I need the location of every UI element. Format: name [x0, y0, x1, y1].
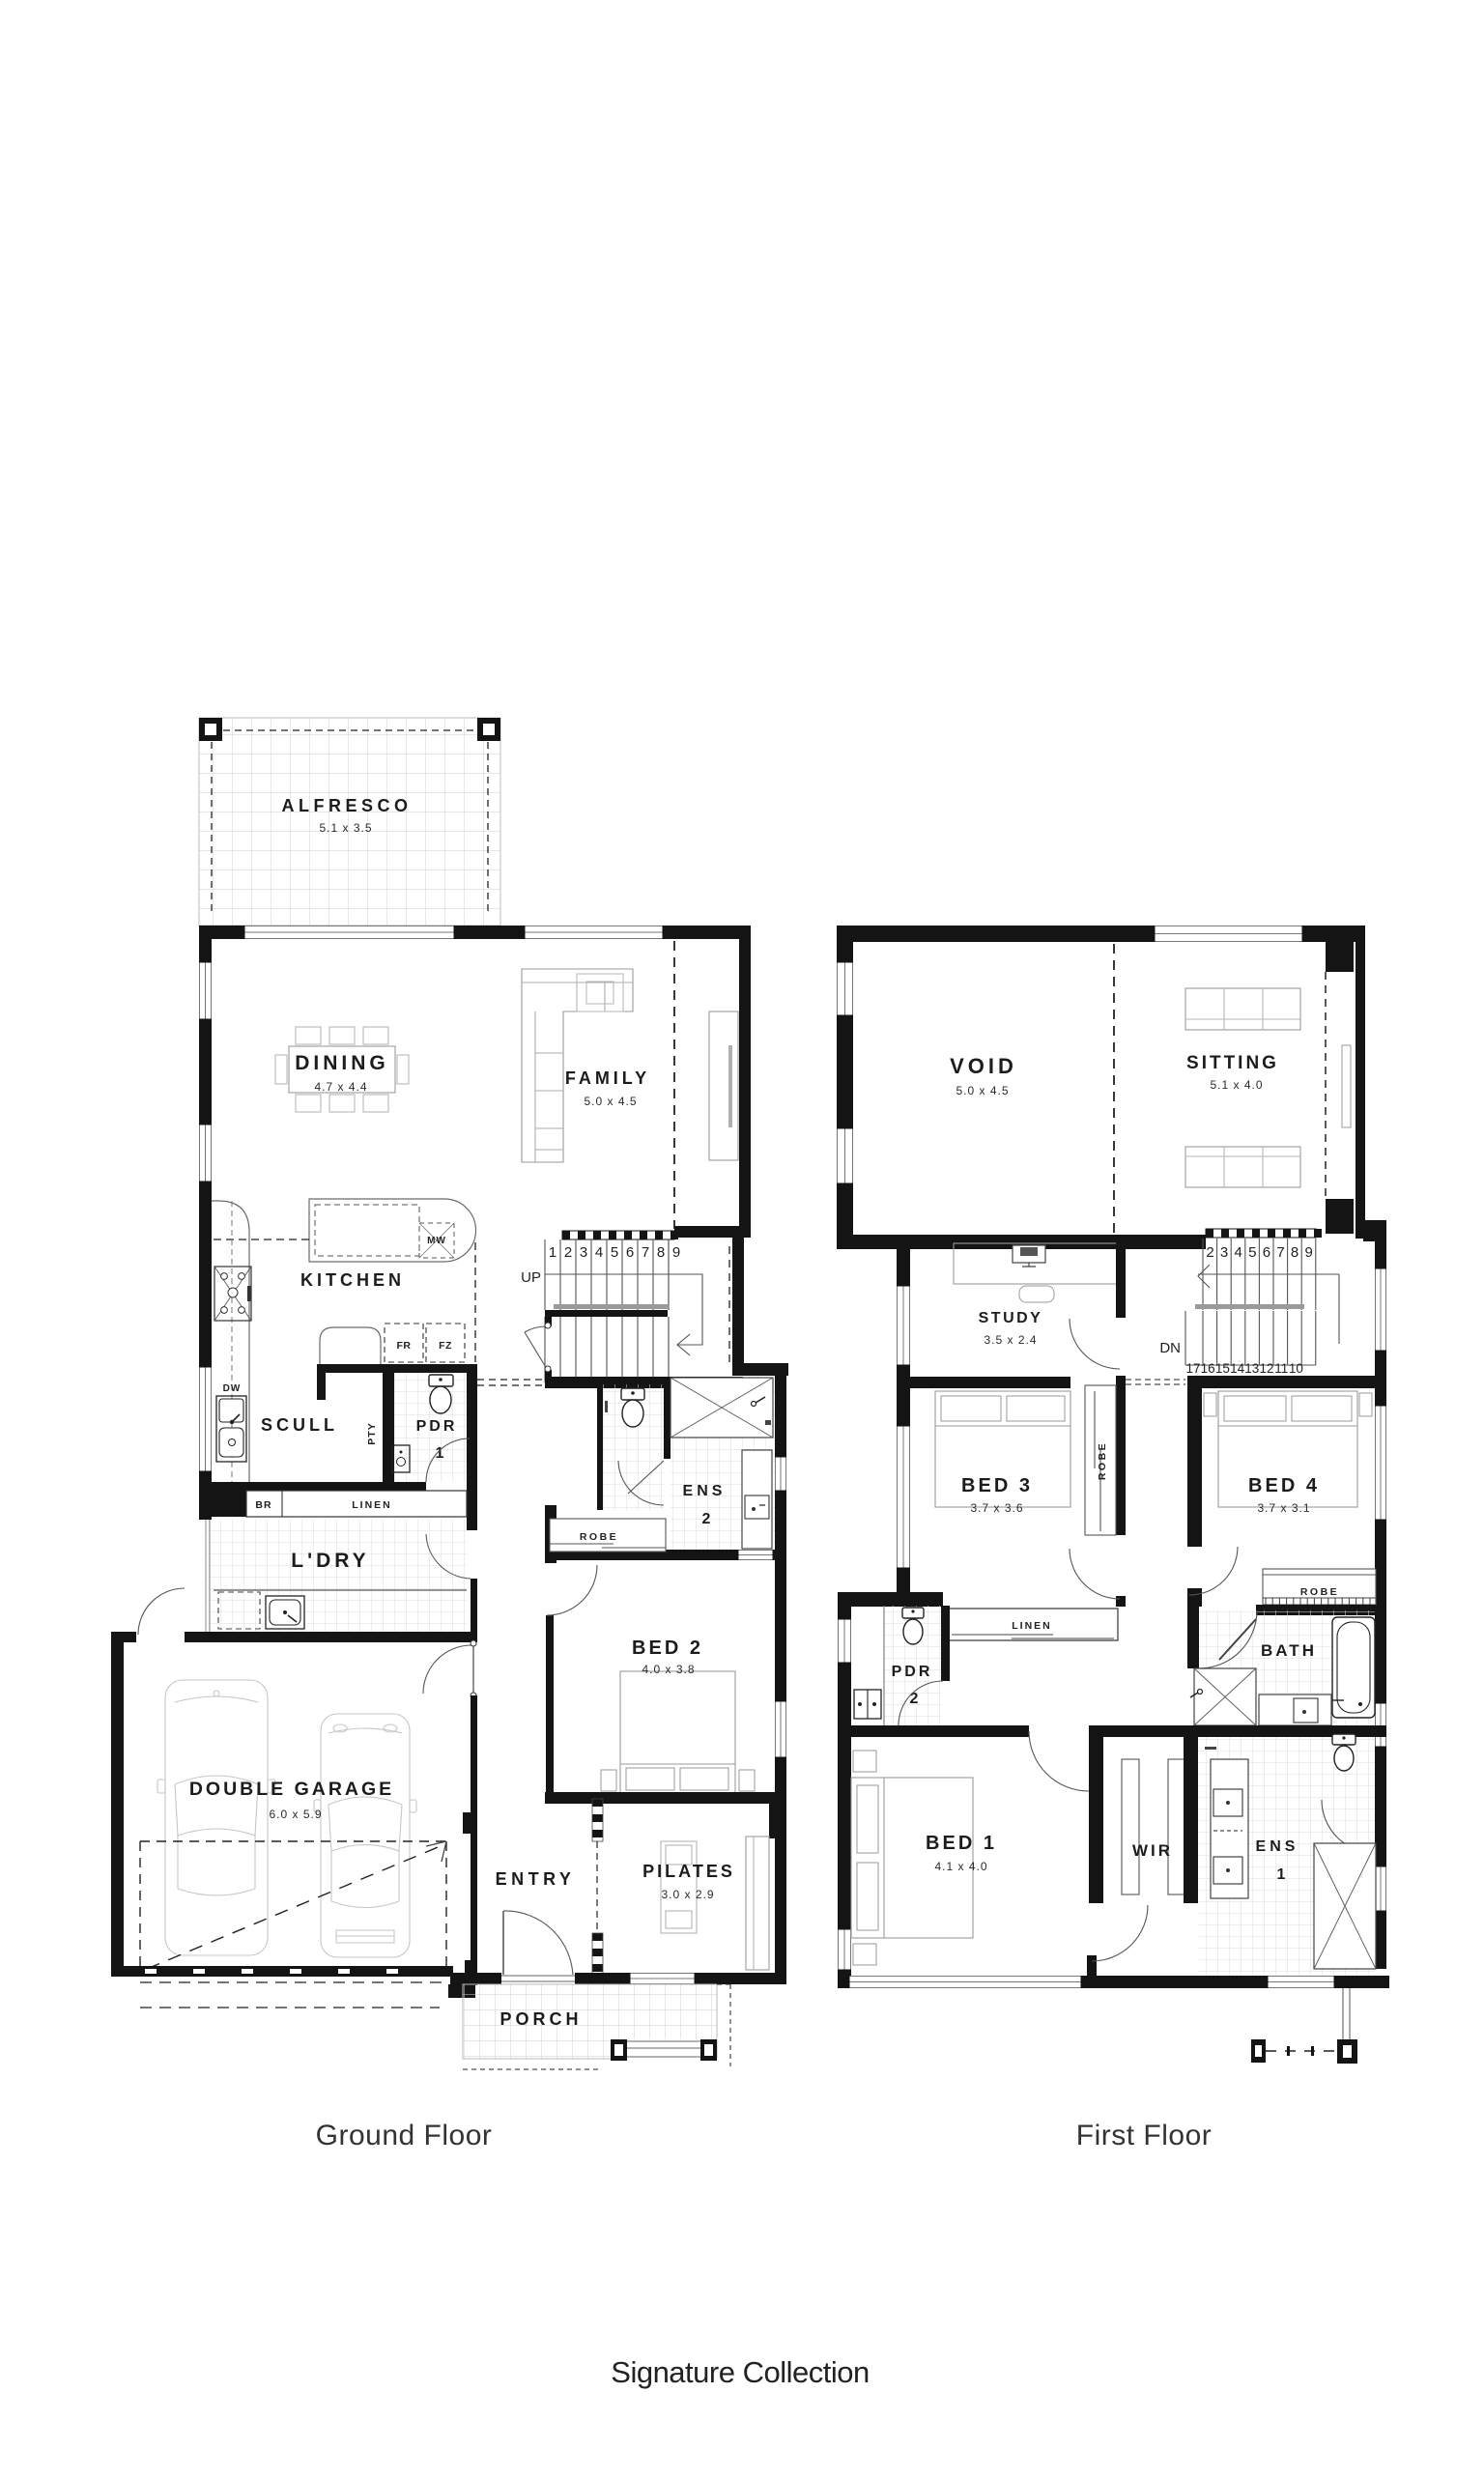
svg-text:BR: BR — [255, 1499, 271, 1511]
svg-text:Signature Collection: Signature Collection — [611, 2355, 869, 2389]
svg-text:ROBE: ROBE — [1300, 1586, 1339, 1598]
svg-text:DN: DN — [1159, 1340, 1181, 1356]
svg-text:First Floor: First Floor — [1076, 2120, 1213, 2151]
svg-text:16: 16 — [1201, 1361, 1215, 1376]
svg-text:15: 15 — [1215, 1361, 1230, 1376]
svg-text:7: 7 — [1276, 1244, 1284, 1261]
svg-text:5.1 x 4.0: 5.1 x 4.0 — [1210, 1078, 1263, 1092]
svg-text:11: 11 — [1274, 1361, 1288, 1376]
svg-text:FR: FR — [397, 1340, 412, 1352]
svg-text:6: 6 — [1263, 1244, 1270, 1261]
svg-text:ENTRY: ENTRY — [496, 1869, 576, 1889]
svg-text:14: 14 — [1230, 1361, 1245, 1376]
svg-text:4.7 x 4.4: 4.7 x 4.4 — [314, 1080, 367, 1094]
svg-text:3.7 x 3.6: 3.7 x 3.6 — [970, 1501, 1023, 1515]
svg-text:KITCHEN: KITCHEN — [300, 1270, 405, 1290]
svg-text:SITTING: SITTING — [1186, 1053, 1279, 1073]
svg-text:BED 2: BED 2 — [632, 1638, 703, 1659]
svg-text:ENS: ENS — [683, 1483, 727, 1499]
svg-text:PDR: PDR — [416, 1418, 458, 1435]
svg-text:9: 9 — [672, 1244, 680, 1261]
svg-text:BED 1: BED 1 — [926, 1833, 997, 1854]
svg-text:ROBE: ROBE — [580, 1531, 618, 1543]
svg-text:4: 4 — [1235, 1244, 1242, 1261]
svg-text:5.0 x 4.5: 5.0 x 4.5 — [584, 1095, 637, 1108]
svg-text:3: 3 — [1220, 1244, 1228, 1261]
svg-text:2: 2 — [910, 1691, 919, 1707]
svg-text:FZ: FZ — [439, 1340, 452, 1352]
svg-text:DW: DW — [223, 1383, 242, 1394]
svg-text:5.0 x 4.5: 5.0 x 4.5 — [956, 1084, 1009, 1097]
svg-text:4: 4 — [595, 1244, 603, 1261]
svg-text:BED 3: BED 3 — [961, 1475, 1033, 1496]
svg-text:LINEN: LINEN — [352, 1499, 392, 1511]
svg-text:2: 2 — [702, 1511, 711, 1527]
svg-text:STUDY: STUDY — [979, 1310, 1043, 1326]
svg-text:VOID: VOID — [950, 1054, 1017, 1078]
svg-text:7: 7 — [642, 1244, 649, 1261]
svg-text:LINEN: LINEN — [1012, 1620, 1052, 1632]
svg-text:WIR: WIR — [1132, 1841, 1173, 1860]
svg-text:3.0 x 2.9: 3.0 x 2.9 — [661, 1888, 714, 1901]
svg-text:1: 1 — [1277, 1866, 1286, 1883]
svg-text:3.5 x 2.4: 3.5 x 2.4 — [984, 1333, 1037, 1347]
svg-text:BATH: BATH — [1261, 1641, 1317, 1660]
svg-text:8: 8 — [657, 1244, 665, 1261]
svg-text:1: 1 — [549, 1244, 556, 1261]
svg-text:Ground Floor: Ground Floor — [316, 2120, 493, 2151]
svg-text:FAMILY: FAMILY — [565, 1068, 650, 1088]
svg-text:5.1 x 3.5: 5.1 x 3.5 — [319, 821, 372, 835]
svg-text:13: 13 — [1244, 1361, 1259, 1376]
svg-text:9: 9 — [1305, 1244, 1313, 1261]
svg-text:L'DRY: L'DRY — [291, 1550, 369, 1572]
svg-text:12: 12 — [1259, 1361, 1273, 1376]
svg-text:DINING: DINING — [295, 1052, 389, 1074]
svg-text:UP: UP — [521, 1269, 541, 1286]
svg-text:6.0 x 5.9: 6.0 x 5.9 — [269, 1808, 322, 1821]
svg-text:ROBE: ROBE — [1097, 1441, 1108, 1480]
svg-text:PILATES: PILATES — [642, 1862, 735, 1881]
svg-text:PTY: PTY — [366, 1422, 378, 1444]
svg-text:PDR: PDR — [892, 1664, 933, 1680]
svg-text:BED 4: BED 4 — [1248, 1475, 1320, 1496]
svg-text:5: 5 — [611, 1244, 618, 1261]
svg-text:SCULL: SCULL — [261, 1415, 338, 1435]
svg-text:8: 8 — [1291, 1244, 1298, 1261]
svg-text:ENS: ENS — [1256, 1838, 1299, 1855]
svg-text:4.0 x 3.8: 4.0 x 3.8 — [642, 1663, 695, 1676]
svg-text:2: 2 — [1206, 1244, 1213, 1261]
svg-text:2: 2 — [564, 1244, 572, 1261]
svg-text:17: 17 — [1185, 1361, 1200, 1376]
svg-text:4.1 x 4.0: 4.1 x 4.0 — [934, 1860, 987, 1873]
svg-text:6: 6 — [626, 1244, 634, 1261]
svg-text:5: 5 — [1248, 1244, 1256, 1261]
svg-text:3: 3 — [580, 1244, 587, 1261]
svg-text:PORCH: PORCH — [499, 2009, 582, 2029]
svg-text:DOUBLE GARAGE: DOUBLE GARAGE — [189, 1779, 394, 1800]
svg-text:10: 10 — [1289, 1361, 1303, 1376]
svg-text:MW: MW — [427, 1236, 446, 1246]
svg-text:ALFRESCO: ALFRESCO — [282, 796, 413, 815]
svg-text:3.7 x 3.1: 3.7 x 3.1 — [1257, 1501, 1310, 1515]
